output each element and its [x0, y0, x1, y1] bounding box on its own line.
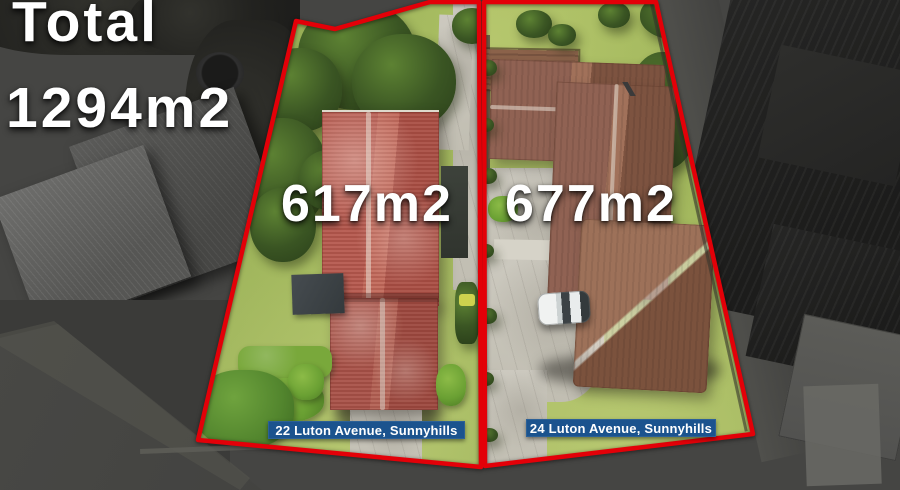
tv-antenna — [618, 82, 640, 96]
tree — [548, 24, 576, 46]
neighbor-driveway — [803, 384, 881, 487]
house-24-roof — [573, 219, 716, 394]
lot-24-area-label: 677m2 — [505, 178, 677, 230]
bush — [288, 364, 324, 400]
total-label: Total — [12, 0, 159, 51]
aerial-photo: Total 1294m2 617m2 677m2 22 Luton Avenue… — [0, 0, 900, 490]
carport — [291, 273, 344, 315]
total-area-value: 1294m2 — [6, 80, 233, 137]
parked-car — [537, 290, 591, 326]
garden-cart — [459, 294, 475, 306]
lot-24-address-banner: 24 Luton Avenue, Sunnyhills — [526, 419, 716, 437]
lot-22-address-banner: 22 Luton Avenue, Sunnyhills — [268, 421, 465, 439]
roof-ridge — [380, 298, 385, 410]
tree — [598, 2, 630, 28]
house-22-roof — [330, 298, 438, 410]
shrub-row — [455, 282, 479, 344]
tree — [516, 10, 552, 38]
shrub — [479, 60, 497, 76]
bush — [436, 364, 466, 406]
shrub — [479, 308, 497, 324]
shrub — [479, 168, 497, 184]
lot-22-area-label: 617m2 — [281, 178, 453, 230]
